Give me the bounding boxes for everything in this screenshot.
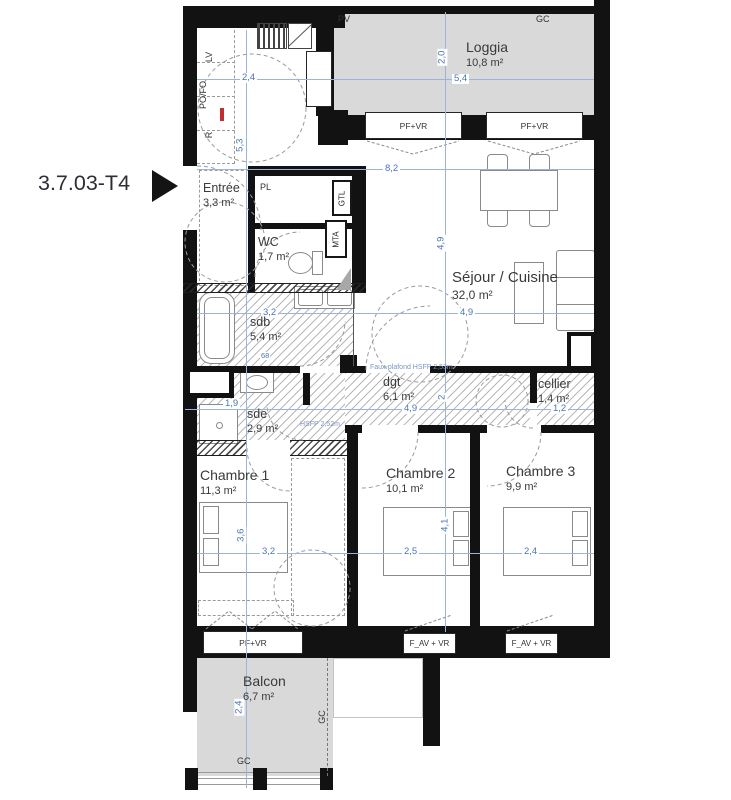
room-label-sde: sde 2,9 m² xyxy=(247,406,278,437)
floor-plan: PF+VR PF+VR PF+VR F_AV + VR F_AV + VR GT… xyxy=(0,0,731,800)
dim-ch1-depth: 3,6 xyxy=(236,527,246,544)
gc-label: GC xyxy=(536,14,550,24)
chair-icon xyxy=(487,210,508,227)
oven-hob-label: PO/FO xyxy=(198,80,208,110)
kitchen-counter-divider xyxy=(197,130,235,131)
wall xyxy=(248,176,255,292)
dish-rack-icon xyxy=(257,23,287,49)
pillow-icon xyxy=(203,538,219,566)
dining-table-icon xyxy=(480,170,558,211)
dim-kitchen-width: 2,4 xyxy=(240,73,257,83)
room-label-chambre1: Chambre 1 11,3 m² xyxy=(200,466,269,498)
dim-ch3-width: 2,4 xyxy=(522,547,539,557)
sde-basin-bowl xyxy=(246,375,268,390)
neighbor-balcony-slab xyxy=(333,658,423,718)
room-label-balcon: Balcon 6,7 m² xyxy=(243,672,286,704)
dim-ch2-width: 2,5 xyxy=(402,547,419,557)
room-label-chambre3: Chambre 3 9,9 m² xyxy=(506,462,575,494)
wall xyxy=(594,0,610,658)
room-label-wc: WC 1,7 m² xyxy=(258,234,289,265)
window-f-av-vr: F_AV + VR xyxy=(505,633,558,654)
kitchen-counter-divider xyxy=(197,62,235,63)
window-swing xyxy=(488,141,580,154)
sofa-cushion-line xyxy=(557,277,594,278)
wall xyxy=(183,6,197,166)
loggia-floor xyxy=(333,12,594,115)
unit-number-label: 3.7.03-T4 xyxy=(38,171,130,196)
room-label-entree: Entrée 3,3 m² xyxy=(203,180,240,211)
dim-loggia-depth: 2,0 xyxy=(437,49,447,66)
kitchen-marker xyxy=(220,108,224,121)
duct-shaft xyxy=(185,367,234,398)
kitchen-sink-icon xyxy=(288,23,312,49)
dishwasher-label: LV xyxy=(204,42,214,72)
gc-label: GC xyxy=(237,756,251,766)
dim-hall-width: 1,9 xyxy=(223,399,240,409)
dim-sejour-width2: 4,9 xyxy=(458,308,475,318)
window-pf-vr: PF+VR xyxy=(203,631,303,654)
railing-post xyxy=(253,768,267,790)
wall xyxy=(345,6,594,14)
duct-shaft xyxy=(567,332,595,370)
mta-box: MTA xyxy=(325,220,347,258)
window-pf-vr: PF+VR xyxy=(486,112,583,139)
dimension-line xyxy=(445,12,446,632)
shower-drain-icon xyxy=(216,422,223,429)
dim-sejour-width: 8,2 xyxy=(383,164,400,174)
room-label-chambre2: Chambre 2 10,1 m² xyxy=(386,464,455,496)
window-pf-vr: PF+VR xyxy=(365,112,462,139)
balcony-gc-separator xyxy=(327,658,328,776)
wall xyxy=(530,373,537,403)
entrance-arrow-icon xyxy=(152,170,178,202)
sdb-edge xyxy=(353,293,354,366)
dim-dgt-length: 4,9 xyxy=(402,404,419,414)
room-label-cellier: cellier 1,4 m² xyxy=(538,376,571,407)
window-f-av-vr: F_AV + VR xyxy=(403,633,456,654)
toilet-tank-icon xyxy=(312,251,323,275)
pillow-icon xyxy=(453,511,469,537)
pillow-icon xyxy=(572,511,588,537)
chair-icon xyxy=(529,210,550,227)
door-arc-sejour xyxy=(366,306,430,370)
bathtub-inner xyxy=(204,297,230,359)
dim-loggia-width: 5,4 xyxy=(452,74,469,84)
dim-ch1-width: 3,2 xyxy=(260,547,277,557)
dim-vanity-width: 68 xyxy=(260,352,270,360)
wall xyxy=(303,373,310,405)
wall xyxy=(347,425,358,632)
room-label-loggia: Loggia 10,8 m² xyxy=(466,38,508,70)
wall xyxy=(345,366,366,373)
gtl-box: GTL xyxy=(332,180,352,216)
room-label-dgt: dgt 6,1 m² xyxy=(383,374,414,405)
pl-label: PL xyxy=(260,182,271,192)
dim-entry-height: 5,3 xyxy=(235,137,245,154)
ceiling-note-dgt: Faux-plafond HSFP 2,53m xyxy=(370,364,453,371)
dim-dgt-depth: 2 xyxy=(437,393,447,402)
pillow-icon xyxy=(203,506,219,534)
wall xyxy=(352,166,366,292)
pv-label: PV xyxy=(338,14,350,24)
partition-wall xyxy=(183,283,366,293)
room-label-sejour: Séjour / Cuisine 32,0 m² xyxy=(452,268,558,303)
dim-ch2-depth: 4,1 xyxy=(440,517,450,534)
wall xyxy=(470,425,480,632)
gc-label: GC xyxy=(317,702,327,732)
partition-wall xyxy=(290,440,347,456)
fridge-label: R xyxy=(204,120,214,150)
wardrobe-zone xyxy=(291,458,345,616)
room-label-sdb: sdb 5,4 m² xyxy=(250,314,281,345)
ceiling-note-sde: HSFP 2,52m xyxy=(300,421,340,428)
dim-sejour-depth: 4,9 xyxy=(436,235,446,252)
wall xyxy=(541,425,594,433)
railing-post xyxy=(185,768,198,790)
partition-wall xyxy=(197,440,247,456)
sofa-icon xyxy=(556,250,595,331)
toilet-icon xyxy=(288,252,313,274)
sofa-cushion-line xyxy=(557,304,594,305)
wall xyxy=(248,166,352,176)
